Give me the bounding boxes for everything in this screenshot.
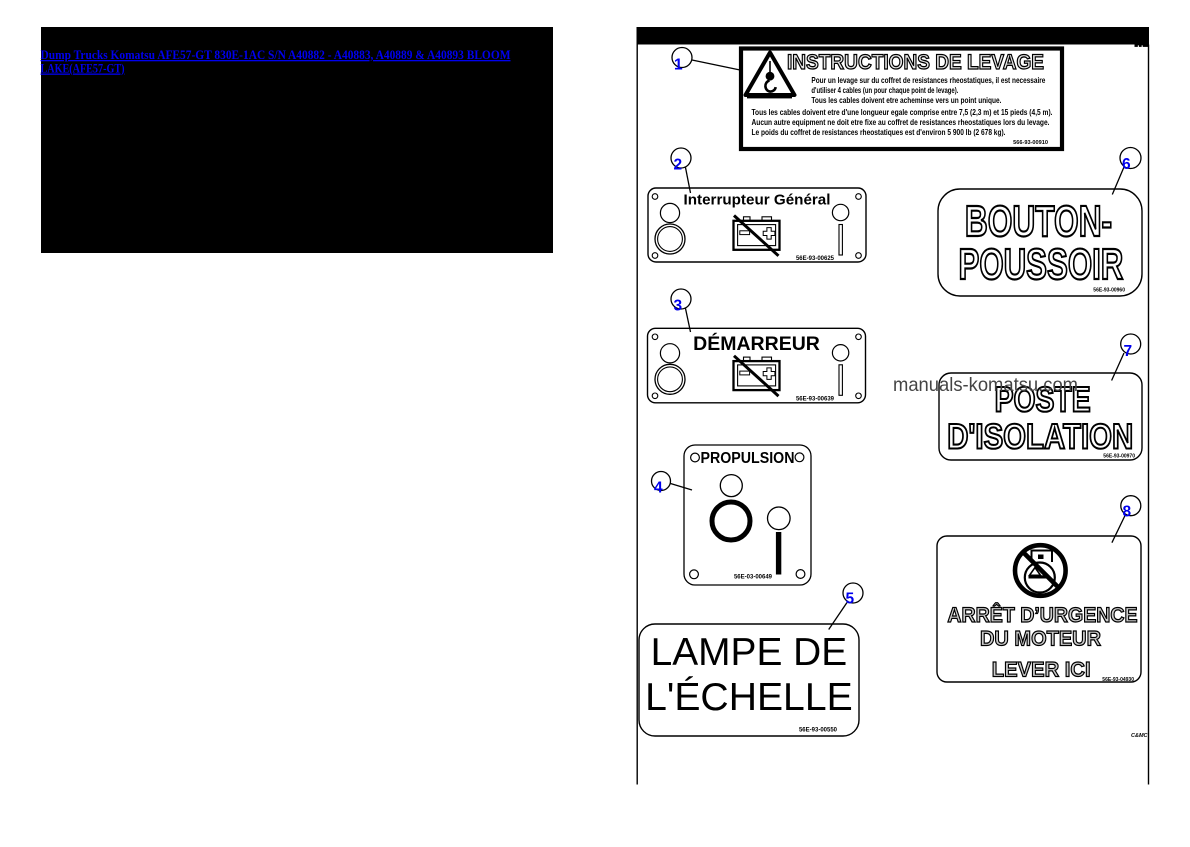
svg-text:566-93-00910: 566-93-00910 bbox=[1013, 140, 1048, 146]
svg-text:Tous les cables doivent etre a: Tous les cables doivent etre acheminse v… bbox=[811, 95, 1001, 105]
svg-text:56E-93-00960: 56E-93-00960 bbox=[1093, 288, 1125, 294]
svg-text:manuals-komatsu.com: manuals-komatsu.com bbox=[893, 374, 1078, 396]
svg-text:ARRÊT D’URGENCE: ARRÊT D’URGENCE bbox=[947, 602, 1137, 627]
svg-text:8: 8 bbox=[1123, 504, 1132, 521]
svg-text:4: 4 bbox=[654, 480, 663, 497]
svg-text:DU MOTEUR: DU MOTEUR bbox=[980, 627, 1101, 651]
svg-text:Le poids du coffret de resista: Le poids du coffret de resistances rheos… bbox=[752, 127, 1006, 137]
svg-text:DÉMARREUR: DÉMARREUR bbox=[693, 332, 820, 355]
svg-text:7: 7 bbox=[1124, 343, 1133, 360]
svg-text:56E-93-04930: 56E-93-04930 bbox=[1102, 677, 1134, 683]
svg-text:d'utiliser 4 cables (un pour c: d'utiliser 4 cables (un pour chaque poin… bbox=[811, 85, 958, 95]
svg-text:6: 6 bbox=[1122, 156, 1131, 173]
svg-text:LAMPE DE: LAMPE DE bbox=[651, 631, 848, 674]
svg-text:56E-93-00970: 56E-93-00970 bbox=[1103, 454, 1135, 460]
svg-text:56E-03-00649: 56E-03-00649 bbox=[734, 575, 773, 581]
svg-text:LEVER ICI: LEVER ICI bbox=[992, 658, 1091, 682]
svg-text:Aucun autre equipment ne doit: Aucun autre equipment ne doit etre fixe … bbox=[752, 117, 1050, 127]
svg-text:POUSSOIR: POUSSOIR bbox=[959, 240, 1124, 290]
svg-text:L'ÉCHELLE: L'ÉCHELLE bbox=[645, 676, 853, 719]
svg-text:D'ISOLATION: D'ISOLATION bbox=[947, 417, 1133, 456]
svg-text:3: 3 bbox=[674, 298, 683, 315]
svg-text:Tous les cables doivent etre d: Tous les cables doivent etre d'une longu… bbox=[752, 107, 1053, 117]
svg-text:1: 1 bbox=[674, 57, 683, 74]
svg-text:Interrupteur Général: Interrupteur Général bbox=[684, 192, 831, 209]
svg-text:C&MC: C&MC bbox=[1131, 733, 1149, 739]
svg-text:5: 5 bbox=[846, 591, 855, 608]
svg-text:Pour un levage sur du coffret: Pour un levage sur du coffret de resista… bbox=[811, 75, 1045, 85]
svg-text:56E-93-00550: 56E-93-00550 bbox=[799, 728, 838, 734]
svg-text:56E-93-00639: 56E-93-00639 bbox=[796, 396, 835, 402]
svg-text:INSTRUCTIONS DE LEVAGE: INSTRUCTIONS DE LEVAGE bbox=[787, 50, 1044, 74]
svg-text:LAKE(AFE57-GT): LAKE(AFE57-GT) bbox=[41, 61, 125, 76]
svg-text:PROPULSION: PROPULSION bbox=[701, 450, 795, 467]
svg-text:56E-93-00625: 56E-93-00625 bbox=[796, 256, 835, 262]
svg-text:2: 2 bbox=[674, 157, 683, 174]
